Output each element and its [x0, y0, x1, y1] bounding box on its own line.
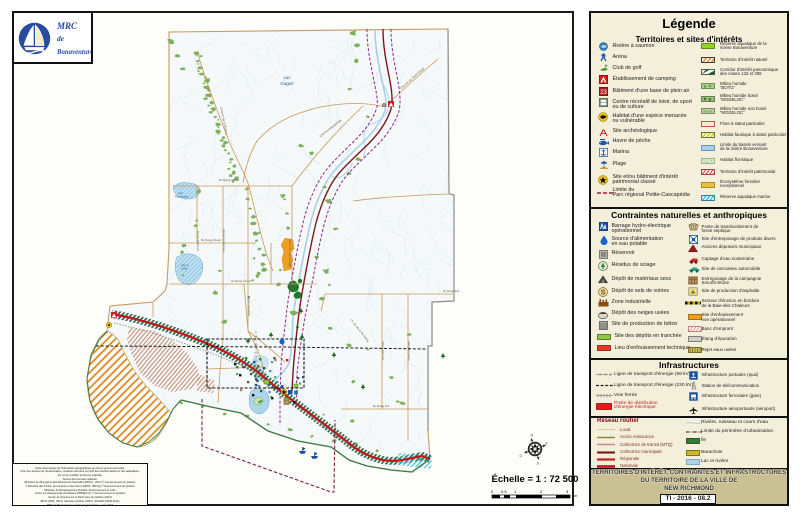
svg-text:Route de Saint-Edgar: Route de Saint-Edgar: [288, 239, 292, 268]
svg-text:0: 0: [491, 489, 494, 494]
svg-text:Route Bellevue: Route Bellevue: [196, 231, 200, 252]
svg-text:6e Rang Est: 6e Rang Est: [373, 404, 390, 408]
svg-text:S: S: [601, 289, 606, 296]
svg-text:Lac: Lac: [283, 75, 291, 80]
svg-text:23: 23: [600, 89, 607, 95]
svg-text:O: O: [520, 454, 523, 458]
svg-text:Km: Km: [572, 494, 577, 498]
svg-text:Route Gauthier: Route Gauthier: [247, 296, 251, 316]
svg-text:Route Henderson: Route Henderson: [222, 229, 226, 253]
svg-text:Machinais: Machinais: [175, 195, 189, 199]
svg-text:1: 1: [514, 489, 517, 494]
svg-text:Côté: Côté: [181, 267, 188, 271]
svg-text:4e Rang Ouest: 4e Rang Ouest: [231, 279, 251, 283]
svg-text:Rang Pruneau: Rang Pruneau: [407, 341, 411, 361]
svg-text:Gagné: Gagné: [280, 81, 294, 86]
svg-text:Route Mercier: Route Mercier: [381, 342, 385, 361]
svg-text:0.5: 0.5: [501, 489, 507, 494]
svg-text:N: N: [531, 434, 534, 438]
svg-text:3: 3: [566, 489, 569, 494]
svg-text:S: S: [537, 462, 540, 466]
svg-text:5e Rang Ouest: 5e Rang Ouest: [201, 238, 221, 242]
svg-text:5e Rang Ouest: 5e Rang Ouest: [219, 178, 239, 182]
svg-text:2: 2: [540, 489, 543, 494]
svg-text:E: E: [546, 442, 549, 446]
svg-text:4e Rang Est: 4e Rang Est: [443, 289, 460, 293]
